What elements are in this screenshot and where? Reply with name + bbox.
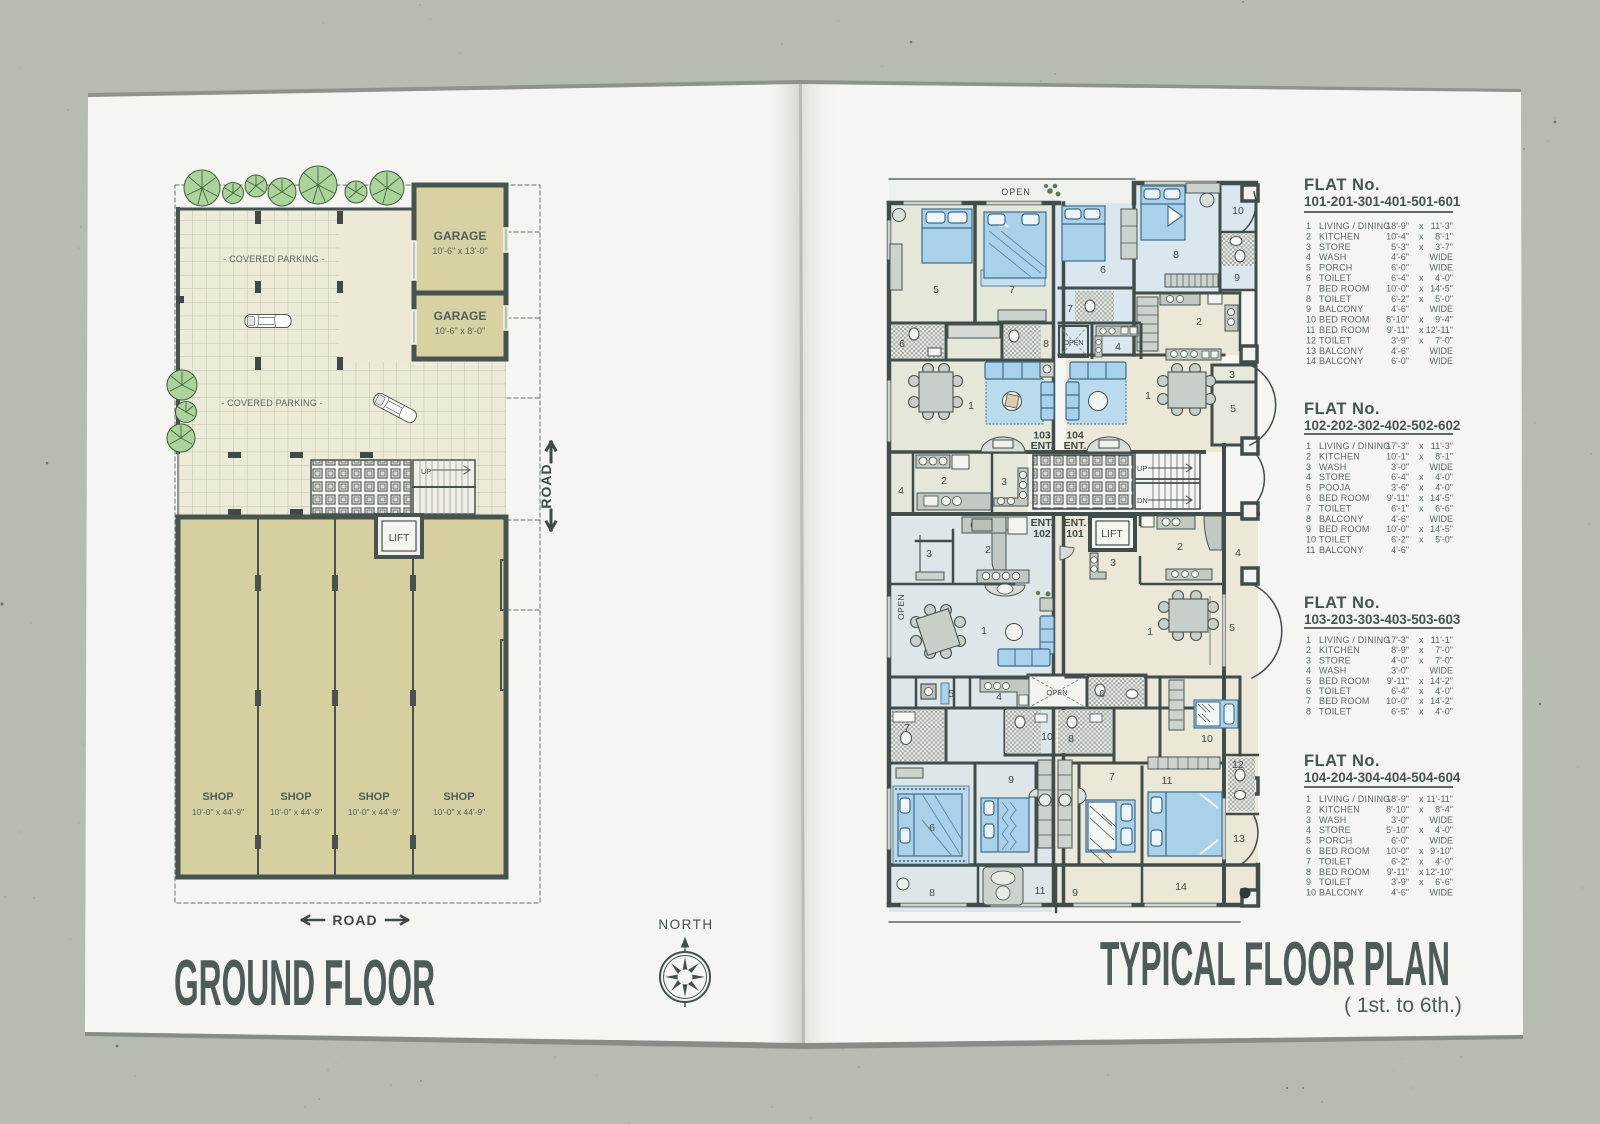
svg-text:14'-2": 14'-2" xyxy=(1430,676,1453,686)
svg-text:8: 8 xyxy=(1173,249,1179,261)
svg-text:5: 5 xyxy=(1306,483,1311,493)
svg-text:5: 5 xyxy=(1306,836,1311,846)
svg-text:x: x xyxy=(1419,451,1424,461)
svg-text:TOILET: TOILET xyxy=(1319,503,1352,513)
svg-text:x: x xyxy=(1419,524,1424,534)
svg-text:4'-0": 4'-0" xyxy=(1391,655,1409,665)
svg-text:4'-6": 4'-6" xyxy=(1391,304,1409,314)
svg-text:5: 5 xyxy=(1306,263,1311,273)
svg-text:1: 1 xyxy=(981,625,987,637)
svg-text:17'-3": 17'-3" xyxy=(1386,441,1409,451)
svg-text:x: x xyxy=(1419,283,1424,293)
svg-text:WASH: WASH xyxy=(1319,815,1346,825)
svg-text:4'-6": 4'-6" xyxy=(1391,514,1409,524)
svg-text:x: x xyxy=(1419,273,1424,283)
svg-text:WIDE: WIDE xyxy=(1430,514,1454,524)
svg-text:KITCHEN: KITCHEN xyxy=(1319,645,1360,655)
svg-text:FLAT No.: FLAT No. xyxy=(1304,176,1380,194)
svg-text:5: 5 xyxy=(948,688,954,700)
svg-text:6: 6 xyxy=(1306,846,1311,856)
svg-text:8'-10": 8'-10" xyxy=(1386,804,1409,814)
svg-text:3: 3 xyxy=(1001,476,1007,488)
svg-text:1: 1 xyxy=(968,400,974,412)
svg-text:BALCONY: BALCONY xyxy=(1319,356,1363,366)
svg-text:x: x xyxy=(1419,503,1424,513)
svg-text:LIVING / DINING: LIVING / DINING xyxy=(1319,441,1391,451)
svg-text:7: 7 xyxy=(1306,283,1311,293)
svg-text:8'-9": 8'-9" xyxy=(1391,645,1409,655)
svg-text:4: 4 xyxy=(1306,825,1311,835)
svg-text:4'-6": 4'-6" xyxy=(1391,545,1409,555)
svg-text:WIDE: WIDE xyxy=(1430,304,1454,314)
svg-text:9: 9 xyxy=(1072,887,1078,899)
svg-text:x: x xyxy=(1419,315,1424,325)
svg-text:18'-9": 18'-9" xyxy=(1386,221,1409,231)
svg-text:1: 1 xyxy=(1306,221,1311,231)
svg-text:9: 9 xyxy=(1306,304,1311,314)
svg-text:WASH: WASH xyxy=(1319,666,1346,676)
svg-text:x: x xyxy=(1419,696,1424,706)
svg-text:5'-10": 5'-10" xyxy=(1386,825,1409,835)
svg-text:6: 6 xyxy=(1306,493,1311,503)
svg-text:6: 6 xyxy=(1306,273,1311,283)
svg-text:13: 13 xyxy=(1306,346,1316,356)
svg-text:LIFT: LIFT xyxy=(1101,528,1123,540)
svg-text:x: x xyxy=(1419,231,1424,241)
svg-text:TOILET: TOILET xyxy=(1319,877,1352,887)
svg-text:x: x xyxy=(1419,706,1424,716)
svg-text:TOILET: TOILET xyxy=(1319,686,1352,696)
svg-text:10'-0": 10'-0" xyxy=(1386,524,1409,534)
svg-text:101-201-301-401-501-601: 101-201-301-401-501-601 xyxy=(1304,194,1461,209)
svg-text:TYPICAL FLOOR PLAN: TYPICAL FLOOR PLAN xyxy=(1100,929,1450,998)
svg-text:ENT.: ENT. xyxy=(1031,440,1054,452)
svg-text:OPEN: OPEN xyxy=(1001,187,1031,197)
svg-text:12: 12 xyxy=(1306,335,1316,345)
svg-text:7: 7 xyxy=(1306,856,1311,866)
svg-text:4'-0": 4'-0" xyxy=(1435,472,1453,482)
svg-text:7: 7 xyxy=(1009,284,1015,296)
svg-text:WIDE: WIDE xyxy=(1430,815,1454,825)
svg-text:103-203-303-403-503-603: 103-203-303-403-503-603 xyxy=(1304,612,1460,627)
svg-text:4'-0": 4'-0" xyxy=(1435,273,1453,283)
svg-text:8: 8 xyxy=(1068,733,1074,745)
svg-text:x: x xyxy=(1419,825,1424,835)
svg-text:4: 4 xyxy=(1115,341,1121,353)
svg-text:7'-0": 7'-0" xyxy=(1435,335,1453,345)
svg-text:3'-6": 3'-6" xyxy=(1391,483,1409,493)
svg-text:4: 4 xyxy=(1306,666,1311,676)
svg-text:STORE: STORE xyxy=(1319,242,1351,252)
svg-text:6'-6": 6'-6" xyxy=(1435,503,1453,513)
svg-text:2: 2 xyxy=(1306,645,1311,655)
svg-text:8: 8 xyxy=(1306,706,1311,716)
svg-text:11: 11 xyxy=(1162,775,1173,787)
svg-text:7'-0": 7'-0" xyxy=(1435,655,1453,665)
svg-text:9: 9 xyxy=(1306,524,1311,534)
svg-text:1: 1 xyxy=(1147,626,1153,638)
svg-text:ROAD: ROAD xyxy=(332,912,377,928)
svg-text:WIDE: WIDE xyxy=(1430,888,1454,898)
svg-text:5: 5 xyxy=(1306,676,1311,686)
svg-text:8'-10": 8'-10" xyxy=(1386,315,1409,325)
svg-text:SHOP: SHOP xyxy=(443,791,474,803)
svg-text:9: 9 xyxy=(1008,774,1014,786)
svg-text:101: 101 xyxy=(1066,528,1084,540)
svg-text:LIVING / DINING: LIVING / DINING xyxy=(1319,221,1391,231)
svg-text:10: 10 xyxy=(1306,535,1316,545)
svg-text:3: 3 xyxy=(1306,462,1311,472)
svg-text:SHOP: SHOP xyxy=(280,791,311,803)
svg-text:8: 8 xyxy=(1043,338,1049,350)
svg-text:- COVERED PARKING -: - COVERED PARKING - xyxy=(223,254,325,264)
svg-text:6'-4": 6'-4" xyxy=(1391,472,1409,482)
svg-text:11'-1": 11'-1" xyxy=(1431,635,1453,645)
svg-text:8: 8 xyxy=(1306,867,1311,877)
svg-text:1: 1 xyxy=(1306,441,1311,451)
svg-text:4'-6": 4'-6" xyxy=(1391,346,1409,356)
svg-text:TOILET: TOILET xyxy=(1319,273,1352,283)
svg-text:12'-10": 12'-10" xyxy=(1425,867,1453,877)
svg-text:4'-0": 4'-0" xyxy=(1435,483,1453,493)
svg-text:3'-0": 3'-0" xyxy=(1391,815,1409,825)
svg-text:WIDE: WIDE xyxy=(1430,346,1454,356)
svg-text:WIDE: WIDE xyxy=(1430,666,1454,676)
svg-text:102-202-302-402-502-602: 102-202-302-402-502-602 xyxy=(1304,418,1460,433)
svg-text:3: 3 xyxy=(1306,655,1311,665)
svg-text:3: 3 xyxy=(1229,369,1235,381)
svg-text:ROAD: ROAD xyxy=(538,463,554,508)
svg-text:7: 7 xyxy=(1109,771,1115,783)
svg-text:10'-0": 10'-0" xyxy=(1386,283,1409,293)
svg-text:LIVING / DINING: LIVING / DINING xyxy=(1319,635,1391,645)
svg-text:10'-0" x 44'-9": 10'-0" x 44'-9" xyxy=(433,807,485,817)
svg-text:WIDE: WIDE xyxy=(1430,252,1454,262)
svg-text:8: 8 xyxy=(1306,514,1311,524)
svg-text:4: 4 xyxy=(1306,472,1311,482)
svg-text:TOILET: TOILET xyxy=(1319,335,1352,345)
svg-text:x: x xyxy=(1419,804,1424,814)
svg-text:3'-0": 3'-0" xyxy=(1391,462,1409,472)
svg-text:5: 5 xyxy=(1230,403,1236,415)
svg-text:5: 5 xyxy=(933,284,939,296)
svg-text:14: 14 xyxy=(1175,881,1187,893)
svg-text:6'-4": 6'-4" xyxy=(1391,686,1409,696)
svg-text:x: x xyxy=(1419,325,1424,335)
svg-text:17'-3": 17'-3" xyxy=(1386,635,1409,645)
svg-text:104-204-304-404-504-604: 104-204-304-404-504-604 xyxy=(1304,770,1461,785)
svg-text:10'-0" x 44'-9": 10'-0" x 44'-9" xyxy=(348,807,400,817)
svg-text:x: x xyxy=(1419,686,1424,696)
svg-text:x: x xyxy=(1419,856,1424,866)
svg-text:10'-1": 10'-1" xyxy=(1386,451,1409,461)
svg-text:POOJA: POOJA xyxy=(1319,483,1351,493)
svg-text:4'-0": 4'-0" xyxy=(1435,706,1453,716)
svg-text:x: x xyxy=(1419,535,1424,545)
svg-text:x: x xyxy=(1419,867,1424,877)
svg-text:9'-10": 9'-10" xyxy=(1430,846,1453,856)
svg-text:x: x xyxy=(1419,655,1424,665)
svg-text:KITCHEN: KITCHEN xyxy=(1319,451,1360,461)
svg-text:ENT.: ENT. xyxy=(1064,440,1087,452)
svg-text:6: 6 xyxy=(1306,686,1311,696)
svg-text:2: 2 xyxy=(1306,451,1311,461)
svg-text:TOILET: TOILET xyxy=(1319,294,1352,304)
svg-text:WASH: WASH xyxy=(1319,462,1346,472)
svg-text:x: x xyxy=(1419,294,1424,304)
svg-text:SHOP: SHOP xyxy=(358,791,389,803)
svg-text:GARAGE: GARAGE xyxy=(434,309,487,323)
svg-text:( 1st. to 6th.): ( 1st. to 6th.) xyxy=(1344,994,1462,1017)
svg-text:14'-5": 14'-5" xyxy=(1430,524,1453,534)
svg-text:x: x xyxy=(1419,242,1424,252)
svg-text:2: 2 xyxy=(985,544,991,556)
svg-text:x: x xyxy=(1419,635,1424,645)
svg-text:BED ROOM: BED ROOM xyxy=(1319,867,1370,877)
svg-text:9'-4": 9'-4" xyxy=(1435,315,1453,325)
svg-text:3'-7": 3'-7" xyxy=(1435,242,1453,252)
svg-text:x: x xyxy=(1419,483,1424,493)
svg-text:13: 13 xyxy=(1233,833,1245,845)
svg-text:11'-11": 11'-11" xyxy=(1426,794,1453,804)
svg-text:WIDE: WIDE xyxy=(1430,462,1454,472)
svg-text:18'-9": 18'-9" xyxy=(1386,794,1409,804)
svg-text:BALCONY: BALCONY xyxy=(1319,888,1363,898)
svg-text:10'-0" x 44'-9": 10'-0" x 44'-9" xyxy=(270,807,322,817)
svg-text:2: 2 xyxy=(1196,316,1202,328)
svg-text:x: x xyxy=(1419,221,1424,231)
svg-text:3: 3 xyxy=(926,548,932,560)
svg-text:11'-3": 11'-3" xyxy=(1431,441,1453,451)
svg-text:5'-0": 5'-0" xyxy=(1435,294,1453,304)
svg-text:7: 7 xyxy=(1306,696,1311,706)
svg-text:11: 11 xyxy=(1306,325,1315,335)
svg-text:BED ROOM: BED ROOM xyxy=(1319,283,1370,293)
svg-text:14'-2": 14'-2" xyxy=(1430,696,1453,706)
svg-text:2: 2 xyxy=(941,475,947,487)
svg-text:6: 6 xyxy=(899,338,905,350)
svg-text:4'-6": 4'-6" xyxy=(1391,888,1409,898)
svg-text:4'-6": 4'-6" xyxy=(1391,252,1409,262)
svg-text:x: x xyxy=(1419,335,1424,345)
svg-text:8'-1": 8'-1" xyxy=(1435,231,1453,241)
svg-text:FLAT No.: FLAT No. xyxy=(1304,752,1380,770)
svg-text:PORCH: PORCH xyxy=(1319,836,1353,846)
svg-text:3'-9": 3'-9" xyxy=(1391,335,1409,345)
svg-text:x: x xyxy=(1419,676,1424,686)
svg-text:WIDE: WIDE xyxy=(1430,356,1454,366)
svg-text:6'-2": 6'-2" xyxy=(1391,856,1409,866)
svg-text:11'-3": 11'-3" xyxy=(1431,221,1453,231)
svg-text:10'-0" x 44'-9": 10'-0" x 44'-9" xyxy=(192,807,244,817)
svg-text:4'-0": 4'-0" xyxy=(1435,825,1453,835)
svg-text:x: x xyxy=(1419,794,1424,804)
svg-text:x: x xyxy=(1419,645,1424,655)
svg-text:PORCH: PORCH xyxy=(1319,263,1353,273)
svg-text:3'-0": 3'-0" xyxy=(1391,666,1409,676)
svg-text:BED ROOM: BED ROOM xyxy=(1319,325,1370,335)
svg-text:6: 6 xyxy=(1099,688,1105,700)
svg-text:WIDE: WIDE xyxy=(1430,263,1454,273)
svg-text:4'-0": 4'-0" xyxy=(1435,856,1453,866)
svg-text:TOILET: TOILET xyxy=(1319,856,1352,866)
svg-text:2: 2 xyxy=(1306,804,1311,814)
svg-text:11: 11 xyxy=(1035,885,1046,897)
svg-text:BED ROOM: BED ROOM xyxy=(1319,493,1370,503)
svg-text:NORTH: NORTH xyxy=(658,917,713,932)
svg-text:6'-1": 6'-1" xyxy=(1391,503,1409,513)
svg-text:12: 12 xyxy=(1232,759,1244,771)
svg-text:4: 4 xyxy=(1306,252,1311,262)
svg-text:11: 11 xyxy=(1306,545,1315,555)
svg-text:8: 8 xyxy=(1306,294,1311,304)
svg-text:BALCONY: BALCONY xyxy=(1319,545,1363,555)
svg-text:6: 6 xyxy=(1100,264,1106,276)
svg-text:BALCONY: BALCONY xyxy=(1319,304,1363,314)
svg-text:UP: UP xyxy=(1137,464,1147,473)
svg-text:9: 9 xyxy=(1306,877,1311,887)
svg-text:6'-2": 6'-2" xyxy=(1391,535,1409,545)
svg-text:9'-11": 9'-11" xyxy=(1387,676,1409,686)
svg-text:7: 7 xyxy=(1306,503,1311,513)
svg-text:14'-5": 14'-5" xyxy=(1430,493,1453,503)
svg-text:x: x xyxy=(1419,846,1424,856)
svg-text:5'-0": 5'-0" xyxy=(1435,535,1453,545)
svg-text:14: 14 xyxy=(1306,356,1316,366)
svg-text:14'-5": 14'-5" xyxy=(1430,283,1453,293)
svg-text:SHOP: SHOP xyxy=(202,791,233,803)
svg-text:9'-11": 9'-11" xyxy=(1387,493,1409,503)
svg-text:10: 10 xyxy=(1041,731,1053,743)
svg-text:5: 5 xyxy=(1229,622,1235,634)
svg-text:KITCHEN: KITCHEN xyxy=(1319,804,1360,814)
svg-text:BALCONY: BALCONY xyxy=(1319,514,1363,524)
svg-text:10: 10 xyxy=(1306,315,1316,325)
svg-text:2: 2 xyxy=(1177,541,1183,553)
svg-text:9'-11": 9'-11" xyxy=(1387,325,1409,335)
svg-text:TOILET: TOILET xyxy=(1319,706,1352,716)
svg-text:STORE: STORE xyxy=(1319,472,1351,482)
svg-text:4: 4 xyxy=(996,691,1002,703)
svg-text:BED ROOM: BED ROOM xyxy=(1319,696,1370,706)
svg-text:6'-0": 6'-0" xyxy=(1391,356,1409,366)
svg-text:x: x xyxy=(1419,441,1424,451)
svg-text:4: 4 xyxy=(1235,547,1241,559)
svg-text:BALCONY: BALCONY xyxy=(1319,346,1363,356)
svg-text:10'-0": 10'-0" xyxy=(1386,846,1409,856)
svg-text:3: 3 xyxy=(1306,242,1311,252)
svg-text:12'-11": 12'-11" xyxy=(1426,325,1453,335)
svg-text:KITCHEN: KITCHEN xyxy=(1319,231,1360,241)
svg-text:GROUND FLOOR: GROUND FLOOR xyxy=(174,948,435,1020)
svg-text:BED ROOM: BED ROOM xyxy=(1319,676,1370,686)
svg-text:10: 10 xyxy=(1201,733,1213,745)
svg-text:6'-0": 6'-0" xyxy=(1391,836,1409,846)
svg-text:6'-2": 6'-2" xyxy=(1391,294,1409,304)
svg-text:x: x xyxy=(1419,493,1424,503)
svg-text:10'-6" x 8'-0": 10'-6" x 8'-0" xyxy=(435,326,485,336)
svg-text:GARAGE: GARAGE xyxy=(434,229,487,243)
svg-text:OPEN: OPEN xyxy=(1064,340,1084,347)
svg-text:7'-0": 7'-0" xyxy=(1435,645,1453,655)
svg-text:6'-5": 6'-5" xyxy=(1391,706,1409,716)
svg-text:UP: UP xyxy=(421,467,431,476)
svg-text:6: 6 xyxy=(929,822,935,834)
svg-text:FLAT No.: FLAT No. xyxy=(1304,594,1380,612)
svg-text:DN: DN xyxy=(1137,496,1148,505)
svg-text:10'-4": 10'-4" xyxy=(1386,231,1409,241)
svg-text:x: x xyxy=(1419,472,1424,482)
svg-text:BED ROOM: BED ROOM xyxy=(1319,846,1370,856)
svg-text:10'-6" x 13'-0": 10'-6" x 13'-0" xyxy=(432,246,487,256)
svg-text:6'-0": 6'-0" xyxy=(1391,263,1409,273)
svg-text:2: 2 xyxy=(1306,231,1311,241)
svg-text:1: 1 xyxy=(1306,635,1311,645)
svg-text:7: 7 xyxy=(1067,303,1073,315)
svg-text:FLAT No.: FLAT No. xyxy=(1304,400,1380,418)
svg-text:8'-1": 8'-1" xyxy=(1435,451,1453,461)
svg-text:STORE: STORE xyxy=(1319,825,1351,835)
svg-text:102: 102 xyxy=(1033,528,1051,540)
svg-text:10: 10 xyxy=(1306,888,1316,898)
svg-text:LIVING / DINING: LIVING / DINING xyxy=(1319,794,1391,804)
svg-text:8: 8 xyxy=(929,887,935,899)
svg-text:WIDE: WIDE xyxy=(1430,836,1454,846)
svg-text:3: 3 xyxy=(1306,815,1311,825)
svg-text:5'-3": 5'-3" xyxy=(1391,242,1409,252)
svg-text:TOILET: TOILET xyxy=(1319,535,1352,545)
svg-text:1: 1 xyxy=(1306,794,1311,804)
svg-text:OPEN: OPEN xyxy=(1046,688,1067,697)
svg-text:x: x xyxy=(1419,877,1424,887)
svg-text:BED ROOM: BED ROOM xyxy=(1319,524,1370,534)
svg-text:WASH: WASH xyxy=(1319,252,1346,262)
svg-text:7: 7 xyxy=(904,722,910,734)
svg-text:10: 10 xyxy=(1232,205,1244,217)
svg-text:1: 1 xyxy=(1145,390,1151,402)
svg-text:8'-4": 8'-4" xyxy=(1435,804,1453,814)
svg-text:BED ROOM: BED ROOM xyxy=(1319,315,1370,325)
svg-text:10'-0": 10'-0" xyxy=(1386,696,1409,706)
svg-text:6'-6": 6'-6" xyxy=(1435,877,1453,887)
svg-text:9: 9 xyxy=(1234,272,1240,284)
svg-text:STORE: STORE xyxy=(1319,655,1351,665)
svg-text:LIFT: LIFT xyxy=(389,533,410,544)
svg-text:- COVERED PARKING -: - COVERED PARKING - xyxy=(221,398,323,408)
svg-text:4: 4 xyxy=(898,485,904,497)
svg-text:9'-11": 9'-11" xyxy=(1387,867,1409,877)
svg-text:4'-0": 4'-0" xyxy=(1435,686,1453,696)
svg-text:3'-9": 3'-9" xyxy=(1391,877,1409,887)
svg-text:6'-4": 6'-4" xyxy=(1391,273,1409,283)
svg-text:3: 3 xyxy=(1110,557,1116,569)
svg-text:OPEN: OPEN xyxy=(896,594,906,620)
